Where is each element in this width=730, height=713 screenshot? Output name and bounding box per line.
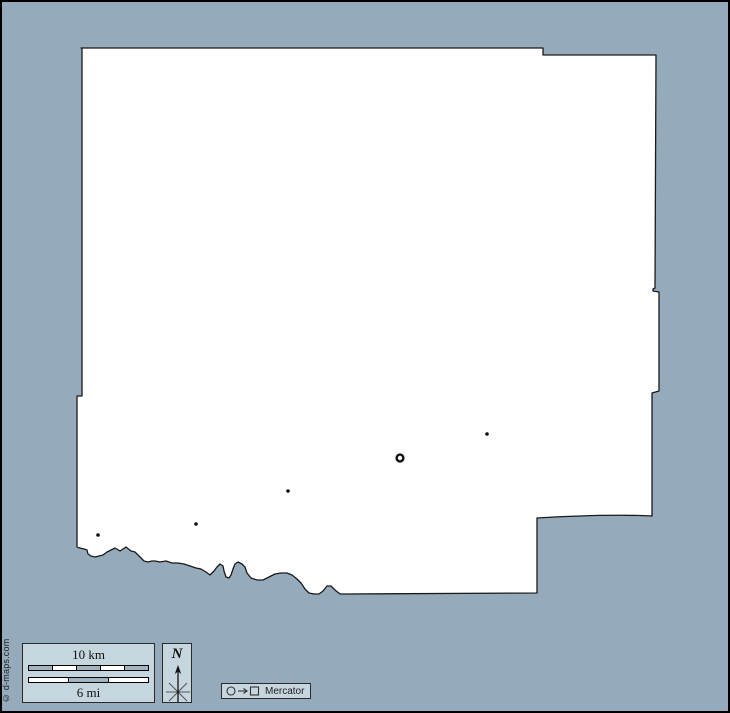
- scale-segment: [29, 678, 68, 682]
- city-dot-marker: [96, 533, 100, 537]
- compass-box: N: [162, 643, 192, 703]
- scale-segment: [29, 666, 52, 670]
- county-outline: [77, 48, 659, 594]
- projection-label: Mercator: [265, 686, 304, 697]
- city-dot-marker: [286, 489, 290, 493]
- scale-km-label: 10 km: [23, 647, 154, 663]
- projection-symbols-icon: [226, 685, 262, 697]
- map-canvas: [0, 0, 730, 713]
- scale-segment: [100, 666, 124, 670]
- scale-km-bar: [28, 665, 149, 671]
- scale-mi-label: 6 mi: [23, 685, 154, 701]
- scale-segment: [68, 678, 108, 682]
- scale-mi-bar: [28, 677, 149, 683]
- city-ring-marker: [397, 455, 404, 462]
- scale-segment: [76, 666, 100, 670]
- scale-segment: [52, 666, 76, 670]
- compass-north-label: N: [163, 646, 191, 663]
- projection-box: Mercator: [221, 683, 311, 699]
- city-dot-marker: [485, 432, 489, 436]
- scale-segment: [124, 666, 148, 670]
- copyright-notice: © d-maps.com: [1, 627, 11, 703]
- compass-rose-icon: [163, 664, 193, 704]
- scale-segment: [108, 678, 148, 682]
- city-dot-marker: [194, 522, 198, 526]
- scale-bar: 10 km 6 mi: [22, 643, 155, 703]
